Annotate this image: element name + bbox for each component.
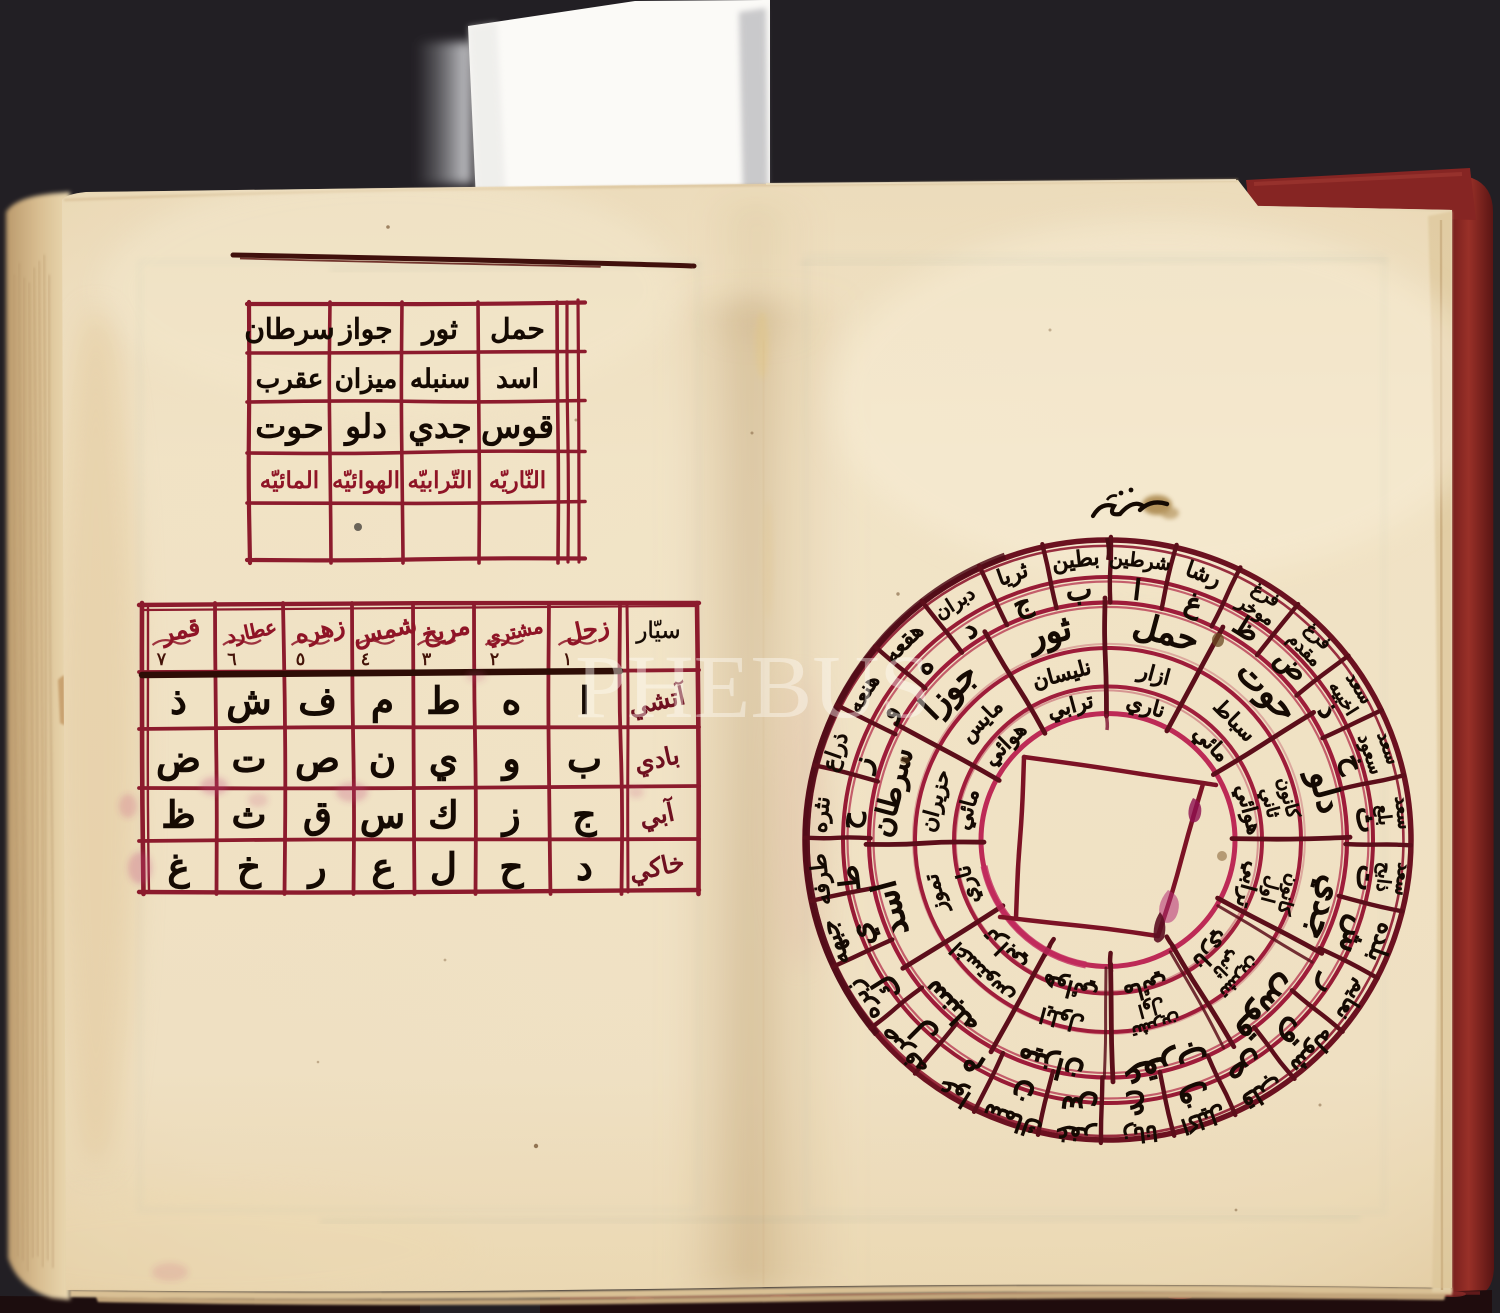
svg-text:ن: ن xyxy=(369,739,396,780)
svg-text:ل: ل xyxy=(430,847,457,888)
svg-text:٦: ٦ xyxy=(227,649,237,669)
svg-text:الهوائيّه: الهوائيّه xyxy=(332,467,400,494)
svg-text:ص: ص xyxy=(295,739,340,782)
svg-text:ثور: ثور xyxy=(420,314,458,346)
svg-text:٤: ٤ xyxy=(361,649,371,669)
svg-text:ذ: ذ xyxy=(170,681,186,722)
svg-text:ظ: ظ xyxy=(161,795,195,836)
svg-text:سرطان: سرطان xyxy=(244,314,334,346)
svg-text:نثره: نثره xyxy=(806,795,836,834)
svg-text:٣: ٣ xyxy=(422,649,432,669)
svg-text:س: س xyxy=(1058,1088,1100,1128)
svg-text:ت: ت xyxy=(1350,863,1384,893)
svg-text:ت: ت xyxy=(232,739,267,780)
svg-text:اسد: اسد xyxy=(496,364,539,394)
svg-text:التّرابيّه: التّرابيّه xyxy=(407,467,472,494)
svg-text:خ: خ xyxy=(237,847,261,890)
svg-text:٧: ٧ xyxy=(157,649,167,669)
svg-text:سنبله: سنبله xyxy=(410,364,470,394)
svg-text:ب: ب xyxy=(567,739,602,780)
svg-text:ع: ع xyxy=(371,847,393,890)
svg-text:غ: غ xyxy=(167,847,189,890)
svg-text:ز: ز xyxy=(501,795,521,838)
svg-text:دلو: دلو xyxy=(343,408,387,447)
svg-text:جواز: جواز xyxy=(337,314,392,346)
svg-text:جدي: جدي xyxy=(408,408,472,446)
svg-text:ميزان: ميزان xyxy=(335,364,397,395)
svg-text:ح: ح xyxy=(500,847,524,890)
svg-text:ج: ج xyxy=(573,795,597,838)
svg-text:ض: ض xyxy=(156,739,201,782)
svg-text:ك: ك xyxy=(428,795,459,836)
svg-text:حوت: حوت xyxy=(255,408,324,447)
svg-text:د: د xyxy=(576,847,592,888)
svg-text:ط: ط xyxy=(426,681,460,722)
svg-text:ف: ف xyxy=(298,681,336,722)
svg-text:ش: ش xyxy=(226,681,271,724)
svg-text:ب: ب xyxy=(1064,573,1094,607)
svg-text:ق: ق xyxy=(303,795,332,836)
svg-text:ر: ر xyxy=(307,847,327,890)
svg-text:ه: ه xyxy=(502,681,521,722)
svg-text:حمل: حمل xyxy=(490,314,545,345)
svg-text:المائيّه: المائيّه xyxy=(260,467,319,493)
svg-text:ث: ث xyxy=(1350,805,1384,835)
svg-text:ي: ي xyxy=(429,739,458,781)
svg-text:١: ١ xyxy=(563,649,573,669)
svg-text:قوس: قوس xyxy=(481,408,554,447)
svg-text:عقرب: عقرب xyxy=(256,364,324,395)
svg-text:س: س xyxy=(360,795,405,838)
svg-text:النّاريّه: النّاريّه xyxy=(489,467,546,494)
svg-text:م: م xyxy=(371,681,394,723)
svg-text:٢: ٢ xyxy=(490,649,500,669)
svg-text:PHEBUS: PHEBUS xyxy=(575,638,931,737)
svg-text:ط: ط xyxy=(832,864,866,893)
svg-text:و: و xyxy=(501,739,521,782)
svg-text:٥: ٥ xyxy=(296,649,306,669)
